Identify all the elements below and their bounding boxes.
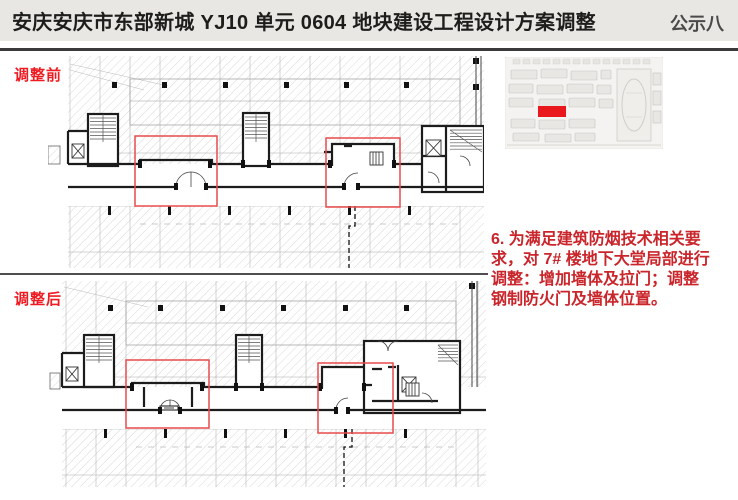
plans-divider-line [0, 273, 488, 275]
note-line: 6. 为满足建筑防烟技术相关要 [491, 230, 737, 250]
adjustment-note: 6. 为满足建筑防烟技术相关要 求，对 7# 楼地下大堂局部进行 调整：增加墙体… [491, 230, 737, 310]
floorplan-before [48, 56, 484, 268]
floorplan-after [48, 281, 490, 487]
header-divider [0, 48, 738, 51]
slide-header: 安庆安庆市东部新城 YJ10 单元 0604 地块建设工程设计方案调整 公示八 [0, 0, 738, 41]
slide-title: 安庆安庆市东部新城 YJ10 单元 0604 地块建设工程设计方案调整 [12, 6, 596, 35]
note-line: 调整：增加墙体及拉门；调整 [491, 270, 737, 290]
site-location-map [505, 57, 663, 149]
site-map-playground [617, 69, 651, 141]
public-notice-slide: 安庆安庆市东部新城 YJ10 单元 0604 地块建设工程设计方案调整 公示八 … [0, 0, 738, 500]
vent-grille [370, 152, 383, 165]
note-line: 钢制防火门及墙体位置。 [491, 290, 737, 310]
sliding-door [160, 406, 178, 410]
vent-grille [406, 383, 419, 396]
site-highlight [538, 106, 566, 117]
note-line: 求，对 7# 楼地下大堂局部进行 [491, 250, 737, 270]
notice-number: 公示八 [670, 10, 724, 36]
